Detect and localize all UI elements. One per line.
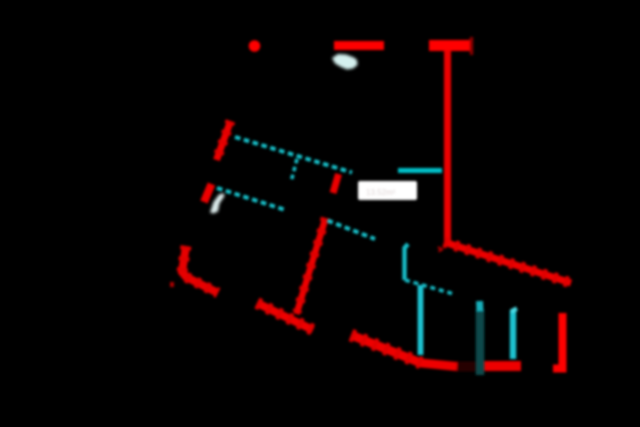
svg-text:13.52m²: 13.52m² bbox=[366, 188, 396, 197]
